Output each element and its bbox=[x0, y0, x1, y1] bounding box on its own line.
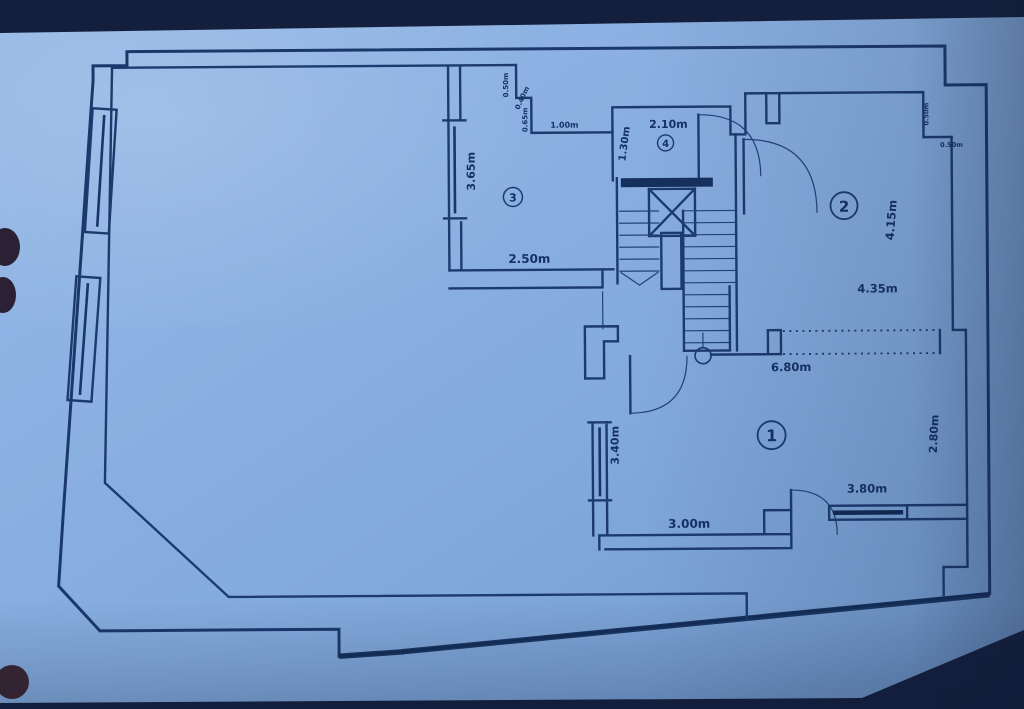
dim-corridor-top: 1.00m bbox=[550, 121, 578, 130]
room3-window bbox=[454, 126, 455, 213]
dim-room3-bottom: 2.50m bbox=[508, 252, 550, 266]
dim-step-lower: 0.65m bbox=[521, 108, 529, 133]
dim-area1-left-window: 3.40m bbox=[609, 426, 622, 465]
room3-number: 3 bbox=[509, 191, 517, 204]
dim-step-upper: 0.50m bbox=[502, 73, 510, 98]
blueprint-photo: 1 2 3 4 3.65m 2.50m 0.50m 0.40m 0.65m 1.… bbox=[0, 0, 1024, 709]
floor-plan-drawing: 1 2 3 4 3.65m 2.50m 0.50m 0.40m 0.65m 1.… bbox=[0, 0, 1024, 709]
dim-room3-left: 3.65m bbox=[465, 152, 478, 191]
bottom-vignette bbox=[0, 600, 1024, 709]
